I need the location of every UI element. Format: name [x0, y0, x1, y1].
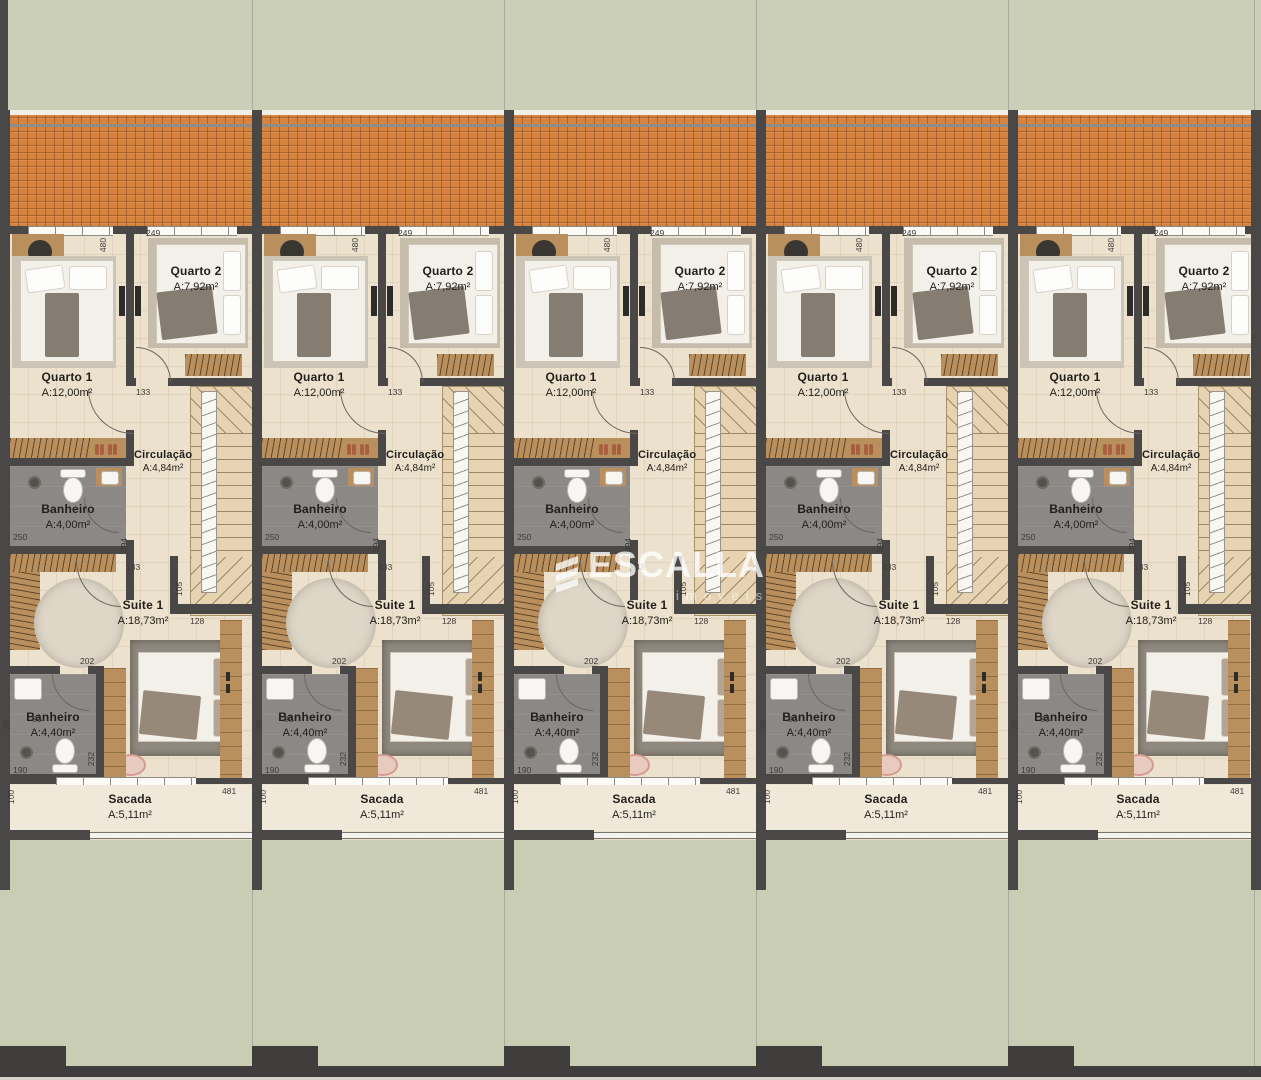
bathroom-wall	[600, 666, 608, 782]
roof-tiles	[0, 110, 1261, 226]
room-area: A:4,40m²	[1018, 726, 1104, 740]
sacada-parapet	[1018, 830, 1098, 840]
room-area: A:4,00m²	[518, 518, 626, 532]
closet-hall	[10, 438, 90, 458]
dim-90: 90	[1040, 714, 1049, 724]
escalla-logo-icon	[556, 560, 582, 594]
sacada-parapet	[10, 830, 90, 840]
wall-stub	[1251, 840, 1261, 890]
shoe-rack	[1098, 438, 1134, 458]
wall-stub	[630, 430, 638, 466]
sink-icon	[266, 678, 294, 700]
room-name: Sacada	[826, 792, 946, 808]
pillow	[223, 295, 241, 335]
lot-line	[1254, 0, 1255, 110]
room-label-quarto2: Quarto 2 A:7,92m²	[902, 264, 1002, 294]
sink-counter	[96, 468, 122, 486]
sacada-railing	[594, 832, 756, 839]
lot-line	[252, 0, 253, 110]
wardrobe-handle	[226, 672, 230, 681]
closet-hall	[766, 438, 846, 458]
toilet-icon	[315, 477, 335, 503]
room-label-suite: Suite 1 A:18,73m²	[340, 598, 450, 628]
headboard-panel	[472, 620, 494, 782]
room-name: Suite 1	[844, 598, 954, 614]
room-area: A:7,92m²	[1154, 280, 1254, 294]
dim-480: 480	[350, 238, 360, 252]
room-label-sacada: Sacada A:5,11m²	[322, 792, 442, 822]
wardrobe-handle	[730, 684, 734, 693]
dim-133b: 133	[378, 562, 392, 572]
wall-quarto2-bottom	[378, 378, 388, 386]
dim-128: 128	[1198, 616, 1212, 626]
room-label-banheiro-suite: Banheiro A:4,40m²	[262, 710, 348, 740]
party-wall	[0, 226, 10, 840]
room-area: A:4,00m²	[1022, 518, 1130, 532]
dim-481: 481	[726, 786, 740, 796]
wardrobe-handle	[730, 672, 734, 681]
toilet-icon	[819, 477, 839, 503]
wall-stub	[756, 840, 766, 890]
room-name: Quarto 1	[764, 370, 882, 386]
room-name: Banheiro	[1018, 710, 1104, 726]
wardrobe	[356, 668, 378, 778]
wall-quarto2-bottom	[126, 378, 136, 386]
window-quarto2	[1155, 226, 1245, 236]
shower-drain-icon	[776, 746, 789, 759]
door-arc-quarto2	[892, 347, 927, 382]
watermark-tagline: imóveis	[676, 588, 769, 603]
backyard-strip	[0, 0, 1261, 110]
room-area: A:12,00m²	[764, 386, 882, 400]
dim-249: 249	[398, 228, 412, 238]
toilet-icon	[1071, 477, 1091, 503]
sink-icon	[14, 678, 42, 700]
bed-quarto2	[408, 244, 498, 344]
shower-drain-icon	[280, 476, 293, 489]
dim-128: 128	[694, 616, 708, 626]
door-frame	[623, 286, 629, 316]
door-frame	[891, 286, 897, 316]
room-name: Banheiro	[10, 710, 96, 726]
room-label-banheiro-suite: Banheiro A:4,40m²	[514, 710, 600, 740]
door-arc-quarto2	[640, 347, 675, 382]
dim-249: 249	[650, 228, 664, 238]
unit-5: Quarto 1 A:12,00m² Quarto 2 A:7,92m² Cir…	[1008, 226, 1260, 840]
sacada-parapet	[514, 830, 594, 840]
dim-100: 100	[510, 790, 520, 804]
shoe-rack	[846, 438, 882, 458]
wall-stub	[378, 430, 386, 466]
dim-202: 202	[1088, 656, 1102, 666]
stair-void	[1209, 391, 1225, 593]
room-label-circulacao: Circulação A:4,84m²	[386, 448, 444, 475]
room-name: Quarto 1	[512, 370, 630, 386]
shoe-rack	[342, 438, 378, 458]
room-area: A:4,00m²	[14, 518, 122, 532]
wall-stub	[882, 430, 890, 466]
dim-190: 190	[265, 765, 279, 775]
party-wall	[1008, 110, 1018, 226]
room-label-quarto2: Quarto 2 A:7,92m²	[398, 264, 498, 294]
pillow	[979, 295, 997, 335]
dim-250: 250	[265, 532, 279, 542]
window-quarto2	[147, 226, 237, 236]
dim-20: 20	[758, 720, 768, 729]
unit-1: Quarto 1 A:12,00m² Quarto 2 A:7,92m² Cir…	[0, 226, 252, 840]
dim-232: 232	[338, 752, 348, 766]
window-quarto2	[903, 226, 993, 236]
room-label-circulacao: Circulação A:4,84m²	[1142, 448, 1200, 475]
blanket	[45, 293, 79, 357]
room-name: Suite 1	[88, 598, 198, 614]
dim-128: 128	[946, 616, 960, 626]
dim-190: 190	[769, 765, 783, 775]
wardrobe-handle	[982, 684, 986, 693]
room-name: Banheiro	[262, 710, 348, 726]
closet-quarto2	[437, 354, 494, 376]
room-label-banheiro-suite: Banheiro A:4,40m²	[1018, 710, 1104, 740]
lot-line	[504, 0, 505, 110]
room-name: Sacada	[322, 792, 442, 808]
room-area: A:4,84m²	[1142, 462, 1200, 475]
shower-drain-icon	[28, 476, 41, 489]
dim-394: 394	[371, 538, 381, 552]
room-label-banheiro-sup: Banheiro A:4,00m²	[518, 502, 626, 532]
dim-20: 20	[254, 720, 264, 729]
sink-counter	[348, 468, 374, 486]
toilet-icon	[559, 738, 579, 764]
dim-20: 20	[1010, 720, 1020, 729]
dim-481: 481	[222, 786, 236, 796]
dim-250: 250	[769, 532, 783, 542]
room-label-sacada: Sacada A:5,11m²	[1078, 792, 1198, 822]
room-label-circulacao: Circulação A:4,84m²	[134, 448, 192, 475]
dim-249: 249	[1154, 228, 1168, 238]
sink-counter	[1104, 468, 1130, 486]
dim-100: 100	[1014, 790, 1024, 804]
room-name: Banheiro	[14, 502, 122, 518]
room-area: A:7,92m²	[902, 280, 1002, 294]
bathroom-wall	[262, 546, 386, 554]
sink-counter	[600, 468, 626, 486]
watermark-brand: ESCALLA	[588, 544, 765, 586]
room-name: Suite 1	[340, 598, 450, 614]
dim-133b: 133	[1134, 562, 1148, 572]
room-label-suite: Suite 1 A:18,73m²	[1096, 598, 1206, 628]
dim-202: 202	[332, 656, 346, 666]
headboard-panel	[1228, 620, 1250, 782]
dim-232: 232	[590, 752, 600, 766]
sacada-railing	[1098, 832, 1260, 839]
bathroom-wall	[852, 666, 860, 782]
staircase	[442, 386, 506, 616]
room-label-sacada: Sacada A:5,11m²	[70, 792, 190, 822]
room-area: A:5,11m²	[826, 808, 946, 822]
room-label-quarto2: Quarto 2 A:7,92m²	[1154, 264, 1254, 294]
dim-133: 133	[136, 387, 150, 397]
bathroom-wall	[96, 666, 104, 782]
lot-line	[756, 0, 757, 110]
toilet-tank	[52, 764, 78, 773]
dim-105: 105	[1182, 582, 1192, 596]
room-label-quarto1: Quarto 1 A:12,00m²	[260, 370, 378, 400]
room-name: Sacada	[70, 792, 190, 808]
wall-stub	[1008, 840, 1018, 890]
bathroom-wall	[262, 666, 312, 674]
party-wall	[252, 110, 262, 226]
dim-202: 202	[836, 656, 850, 666]
room-area: A:4,40m²	[514, 726, 600, 740]
dim-249: 249	[902, 228, 916, 238]
room-area: A:4,84m²	[386, 462, 444, 475]
dim-190: 190	[13, 765, 27, 775]
blanket	[660, 286, 721, 340]
pillow	[1231, 295, 1249, 335]
door-arc-quarto2	[1144, 347, 1179, 382]
room-label-banheiro-suite: Banheiro A:4,40m²	[10, 710, 96, 740]
door-frame	[1143, 286, 1149, 316]
wardrobe-handle	[226, 684, 230, 693]
sacada-parapet	[262, 830, 342, 840]
room-label-suite: Suite 1 A:18,73m²	[844, 598, 954, 628]
roof-eave	[0, 110, 1261, 115]
room-name: Circulação	[638, 448, 696, 462]
party-wall-right	[1251, 226, 1261, 840]
wall-quarto2-bottom	[924, 378, 1008, 386]
room-name: Circulação	[890, 448, 948, 462]
room-area: A:18,73m²	[1096, 614, 1206, 628]
pillow	[69, 266, 107, 290]
dim-100: 100	[6, 790, 16, 804]
bathroom-wall	[1018, 546, 1142, 554]
wardrobe-handle	[982, 672, 986, 681]
sink-counter	[852, 468, 878, 486]
shower-drain-icon	[1036, 476, 1049, 489]
dim-250: 250	[1021, 532, 1035, 542]
room-area: A:4,40m²	[766, 726, 852, 740]
headboard-panel	[976, 620, 998, 782]
room-area: A:12,00m²	[8, 386, 126, 400]
room-area: A:7,92m²	[146, 280, 246, 294]
front-garden	[0, 840, 1261, 1080]
dim-100: 100	[258, 790, 268, 804]
unit-4: Quarto 1 A:12,00m² Quarto 2 A:7,92m² Cir…	[756, 226, 1008, 840]
bathroom-wall	[348, 666, 356, 782]
dim-133: 133	[388, 387, 402, 397]
dim-232: 232	[842, 752, 852, 766]
wardrobe	[1112, 668, 1134, 778]
wall-quarto2-bottom	[420, 378, 504, 386]
dim-480: 480	[854, 238, 864, 252]
door-frame	[387, 286, 393, 316]
wall-left-edge	[0, 0, 8, 110]
toilet-icon	[63, 477, 83, 503]
blanket	[643, 690, 705, 740]
bed-quarto1	[20, 260, 114, 362]
sink-icon	[101, 471, 119, 485]
door-frame	[135, 286, 141, 316]
wardrobe	[608, 668, 630, 778]
dim-481: 481	[1230, 786, 1244, 796]
room-name: Banheiro	[1022, 502, 1130, 518]
room-name: Quarto 2	[398, 264, 498, 280]
dim-133: 133	[640, 387, 654, 397]
room-name: Quarto 2	[902, 264, 1002, 280]
blanket	[156, 286, 217, 340]
bathroom-wall	[1018, 458, 1134, 466]
room-area: A:5,11m²	[322, 808, 442, 822]
bed-quarto2	[156, 244, 246, 344]
sink-icon	[353, 471, 371, 485]
staircase	[190, 386, 254, 616]
toilet-icon	[567, 477, 587, 503]
party-wall	[756, 226, 766, 840]
door-frame	[875, 286, 881, 316]
dim-105: 105	[426, 582, 436, 596]
room-area: A:5,11m²	[70, 808, 190, 822]
pillow	[727, 295, 745, 335]
room-name: Banheiro	[518, 502, 626, 518]
sink-icon	[857, 471, 875, 485]
dim-90: 90	[32, 714, 41, 724]
room-name: Quarto 1	[1016, 370, 1134, 386]
toilet-icon	[1063, 738, 1083, 764]
wardrobe	[104, 668, 126, 778]
wall-between-quartos	[126, 234, 134, 386]
room-name: Quarto 2	[1154, 264, 1254, 280]
room-label-quarto1: Quarto 1 A:12,00m²	[512, 370, 630, 400]
room-label-circulacao: Circulação A:4,84m²	[638, 448, 696, 475]
blanket	[297, 293, 331, 357]
sink-icon	[770, 678, 798, 700]
dim-480: 480	[98, 238, 108, 252]
bed-quarto2	[660, 244, 750, 344]
closet-quarto2	[185, 354, 242, 376]
wall-stub	[252, 840, 262, 890]
blanket	[391, 690, 453, 740]
room-label-circulacao: Circulação A:4,84m²	[890, 448, 948, 475]
dim-190: 190	[1021, 765, 1035, 775]
room-area: A:7,92m²	[650, 280, 750, 294]
room-area: A:4,84m²	[638, 462, 696, 475]
room-label-banheiro-sup: Banheiro A:4,00m²	[266, 502, 374, 532]
blanket	[912, 286, 973, 340]
sacada-railing	[90, 832, 252, 839]
dim-20: 20	[2, 720, 12, 729]
unit-3: Quarto 1 A:12,00m² Quarto 2 A:7,92m² Cir…	[504, 226, 756, 840]
party-wall	[1008, 226, 1018, 840]
closet-hall	[262, 438, 342, 458]
bathroom-wall	[10, 546, 134, 554]
room-name: Quarto 2	[650, 264, 750, 280]
watermark: ESCALLA imóveis	[556, 544, 796, 616]
sink-icon	[518, 678, 546, 700]
room-label-quarto2: Quarto 2 A:7,92m²	[650, 264, 750, 294]
wall-between-quartos	[882, 234, 890, 386]
bathroom-wall	[10, 458, 126, 466]
pillow	[1077, 266, 1115, 290]
room-name: Banheiro	[770, 502, 878, 518]
door-frame	[371, 286, 377, 316]
room-area: A:4,40m²	[262, 726, 348, 740]
dim-394: 394	[875, 538, 885, 552]
dim-20: 20	[506, 720, 516, 729]
bathroom-wall	[262, 458, 378, 466]
room-area: A:4,00m²	[266, 518, 374, 532]
room-name: Banheiro	[514, 710, 600, 726]
wall-between-quartos	[1134, 234, 1142, 386]
dim-202: 202	[584, 656, 598, 666]
window-quarto2	[651, 226, 741, 236]
pillow	[529, 264, 570, 293]
sink-icon	[1109, 471, 1127, 485]
pillow	[277, 264, 318, 293]
stair-void	[957, 391, 973, 593]
window-quarto2	[399, 226, 489, 236]
pillow	[781, 264, 822, 293]
room-area: A:18,73m²	[88, 614, 198, 628]
dim-202: 202	[80, 656, 94, 666]
party-wall	[252, 226, 262, 840]
room-area: A:4,84m²	[890, 462, 948, 475]
bathroom-wall	[10, 666, 60, 674]
room-name: Sacada	[1078, 792, 1198, 808]
room-name: Banheiro	[266, 502, 374, 518]
wardrobe-handle	[1234, 672, 1238, 681]
wall-stub	[126, 430, 134, 466]
headboard-panel	[220, 620, 242, 782]
sink-icon	[605, 471, 623, 485]
room-name: Quarto 1	[8, 370, 126, 386]
blanket	[549, 293, 583, 357]
wall-stub	[0, 840, 10, 890]
wall-between-quartos	[630, 234, 638, 386]
party-wall	[756, 110, 766, 226]
dim-481: 481	[978, 786, 992, 796]
closet-quarto2	[941, 354, 998, 376]
blanket	[1053, 293, 1087, 357]
wall-stub	[504, 840, 514, 890]
room-name: Circulação	[386, 448, 444, 462]
wall-stub	[1134, 430, 1142, 466]
room-label-quarto1: Quarto 1 A:12,00m²	[764, 370, 882, 400]
party-wall	[1251, 110, 1261, 226]
room-area: A:4,00m²	[770, 518, 878, 532]
sink-icon	[1022, 678, 1050, 700]
door-arc-quarto2	[388, 347, 423, 382]
closet-hall	[1018, 438, 1098, 458]
wall-quarto2-bottom	[1134, 378, 1144, 386]
wall-quarto2-bottom	[672, 378, 756, 386]
stair-void	[201, 391, 217, 593]
door-frame	[119, 286, 125, 316]
room-area: A:12,00m²	[1016, 386, 1134, 400]
shower-drain-icon	[524, 746, 537, 759]
bathroom-wall	[514, 666, 564, 674]
room-name: Quarto 2	[146, 264, 246, 280]
dim-480: 480	[1106, 238, 1116, 252]
dim-394: 394	[119, 538, 129, 552]
dim-133: 133	[892, 387, 906, 397]
room-area: A:18,73m²	[340, 614, 450, 628]
dim-90: 90	[536, 714, 545, 724]
room-label-suite: Suite 1 A:18,73m²	[88, 598, 198, 628]
dim-250: 250	[517, 532, 531, 542]
staircase	[946, 386, 1010, 616]
dim-250: 250	[13, 532, 27, 542]
room-label-sacada: Sacada A:5,11m²	[574, 792, 694, 822]
